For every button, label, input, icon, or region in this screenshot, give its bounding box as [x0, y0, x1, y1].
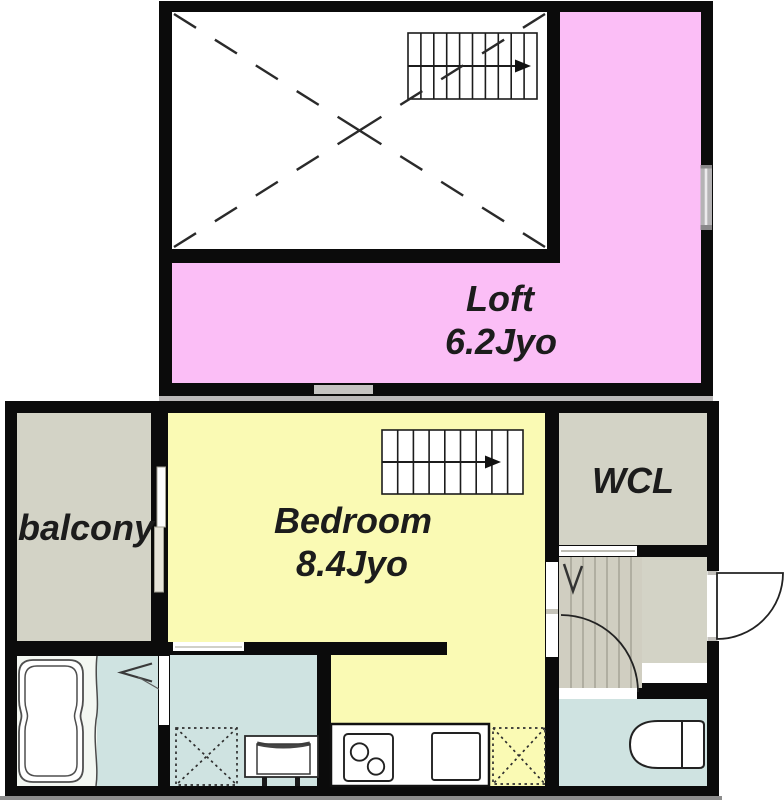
svg-text:Bedroom: Bedroom	[274, 500, 432, 541]
svg-text:Loft: Loft	[466, 278, 536, 319]
svg-text:balcony: balcony	[18, 507, 156, 548]
svg-text:6.2Jyo: 6.2Jyo	[445, 321, 557, 362]
svg-text:8.4Jyo: 8.4Jyo	[296, 543, 408, 584]
svg-text:WCL: WCL	[592, 460, 674, 501]
